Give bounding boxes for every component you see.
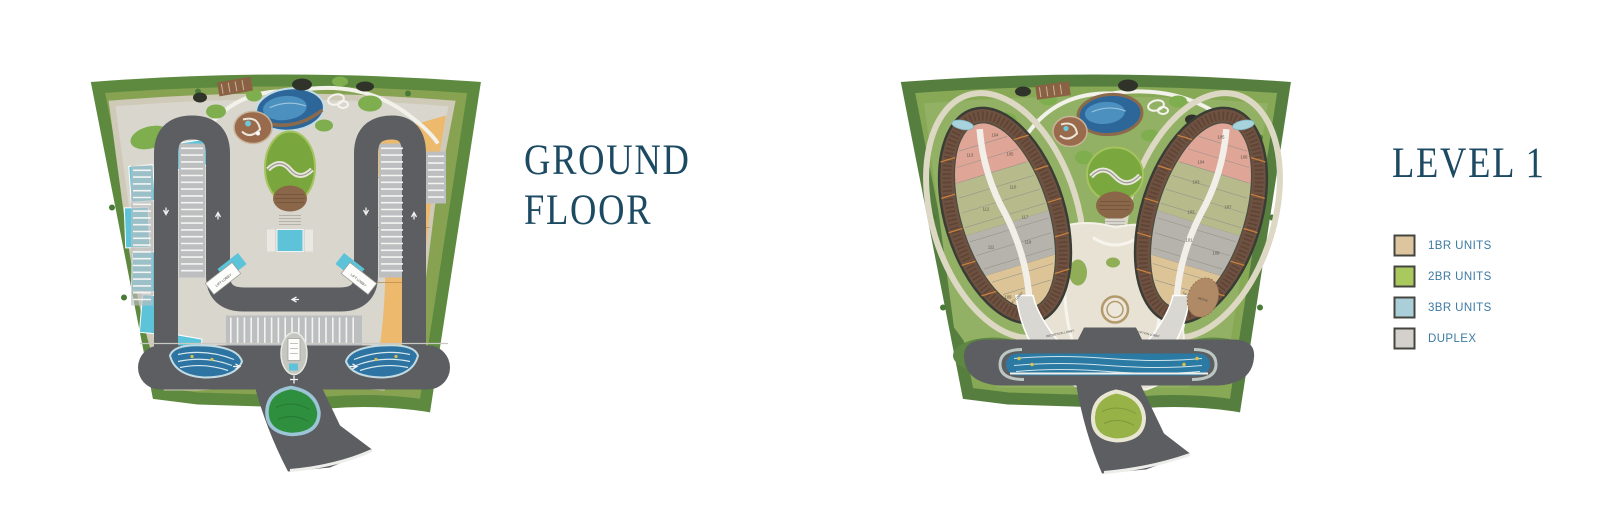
- unit-number: 104: [992, 133, 1000, 138]
- level-1-plan-svg: 104 113 105 110 112 117 111 118 109 105 …: [888, 50, 1312, 490]
- unit-number: 105: [1218, 135, 1226, 140]
- entry-green-island: [1093, 392, 1144, 441]
- legend-row-2br: 2BR UNITS: [1393, 265, 1492, 288]
- tree: [1118, 80, 1138, 92]
- unit-type-legend: 1BR UNITS 2BR UNITS 3BR UNITS DUPLEX: [1393, 234, 1492, 358]
- unit-number: 102: [1188, 210, 1196, 215]
- kids-playground: [234, 112, 272, 144]
- ground-floor-title-line1: GROUND: [524, 136, 691, 186]
- unit-number: 109: [1005, 295, 1013, 300]
- legend-label-2br: 2BR UNITS: [1428, 271, 1492, 283]
- legend-swatch-duplex: [1393, 327, 1416, 350]
- unit-number: 113: [967, 153, 974, 158]
- unit-number: 107: [1225, 205, 1233, 210]
- entry-green-island: [267, 388, 319, 435]
- courtyard-pool: [277, 230, 303, 252]
- unit-number: 105: [1007, 152, 1015, 157]
- ground-floor-plan-svg: LIFT LOBBY LIFT LOBBY: [78, 50, 502, 490]
- level-1-title: LEVEL 1: [1392, 139, 1546, 189]
- kids-playground: [1053, 117, 1087, 147]
- legend-swatch-2br: [1393, 265, 1416, 288]
- unit-number: 103: [1193, 180, 1201, 185]
- unit-number: 111: [988, 245, 995, 250]
- legend-swatch-3br: [1393, 296, 1416, 319]
- tree: [292, 79, 312, 91]
- unit-number: 110: [1010, 185, 1017, 190]
- brochure-page: LIFT LOBBY LIFT LOBBY: [0, 0, 1600, 506]
- unit-number: 101: [1186, 238, 1194, 243]
- ground-floor-title-line2: FLOOR: [524, 186, 691, 236]
- ground-floor-title: GROUND FLOOR: [524, 136, 691, 236]
- legend-swatch-1br: [1393, 234, 1416, 257]
- legend-label-1br: 1BR UNITS: [1428, 240, 1492, 252]
- plaza-circle-motif: [1102, 297, 1128, 323]
- tree: [356, 82, 374, 92]
- unit-number: 106: [1241, 155, 1249, 160]
- tree: [1015, 87, 1031, 97]
- unit-number: 112: [983, 207, 990, 212]
- tree: [193, 93, 207, 103]
- legend-row-duplex: DUPLEX: [1393, 327, 1492, 350]
- unit-number: 104: [1198, 160, 1206, 165]
- unit-number: 118: [1025, 240, 1032, 245]
- level-1-plan-image: 104 113 105 110 112 117 111 118 109 105 …: [888, 50, 1312, 490]
- gatehouse: [281, 333, 307, 375]
- ground-floor-plan-image: LIFT LOBBY LIFT LOBBY: [78, 50, 502, 490]
- central-courtyard: [265, 132, 315, 252]
- legend-label-3br: 3BR UNITS: [1428, 302, 1492, 314]
- legend-label-duplex: DUPLEX: [1428, 333, 1476, 345]
- unit-number: 108: [1213, 251, 1221, 256]
- legend-row-1br: 1BR UNITS: [1393, 234, 1492, 257]
- unit-number: 117: [1022, 215, 1029, 220]
- legend-row-3br: 3BR UNITS: [1393, 296, 1492, 319]
